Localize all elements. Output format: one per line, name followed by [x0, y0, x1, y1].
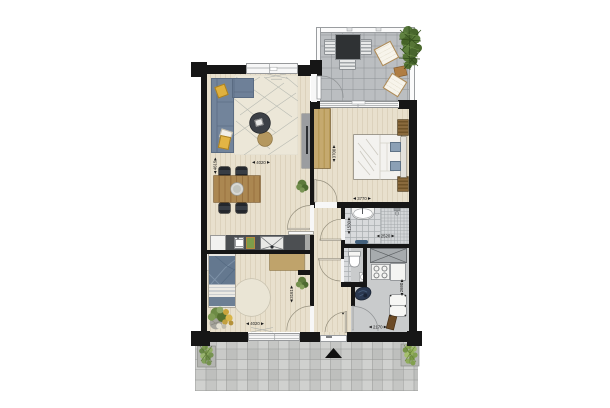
svg-text:3770: 3770 — [357, 196, 367, 201]
svg-text:4020: 4020 — [256, 160, 266, 165]
svg-text:2520: 2520 — [381, 234, 391, 239]
svg-text:1530: 1530 — [346, 220, 351, 230]
svg-text:2690: 2690 — [399, 282, 404, 292]
svg-text:4615: 4615 — [213, 160, 218, 170]
svg-text:4020: 4020 — [250, 321, 260, 326]
svg-text:2170: 2170 — [373, 325, 383, 330]
svg-text:3700: 3700 — [331, 148, 336, 158]
svg-text:3161: 3161 — [289, 289, 294, 299]
